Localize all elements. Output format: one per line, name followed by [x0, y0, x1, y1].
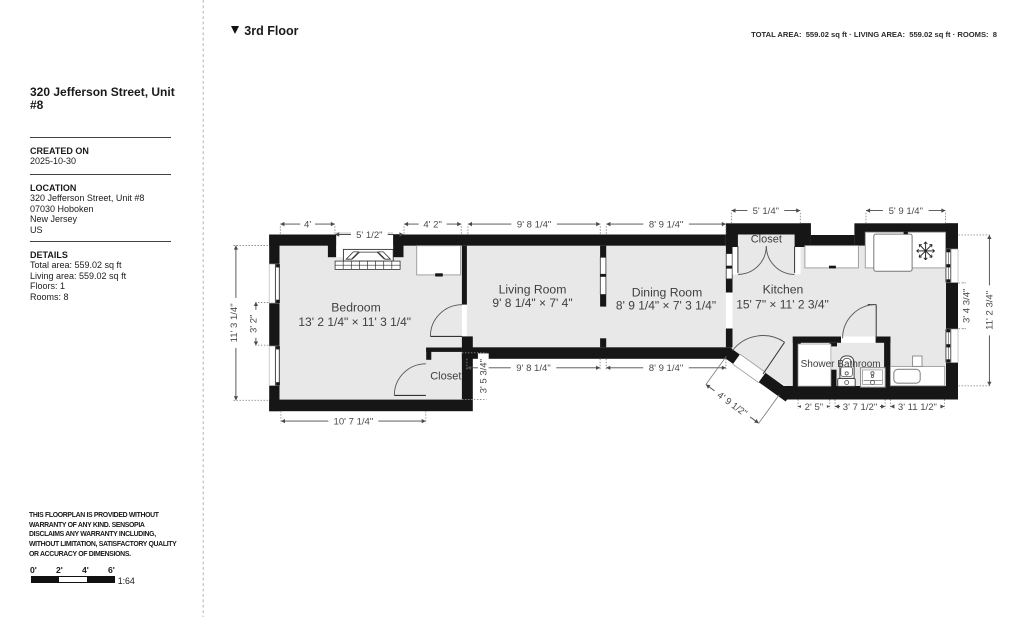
svg-text:4' 2": 4' 2": [423, 219, 441, 230]
svg-text:4': 4': [304, 219, 311, 230]
svg-text:10' 7 1/4": 10' 7 1/4": [334, 416, 374, 427]
svg-text:9' 8 1/4" × 7' 4": 9' 8 1/4" × 7' 4": [492, 296, 572, 310]
svg-text:Kitchen: Kitchen: [763, 282, 804, 296]
svg-text:3' 5 3/4": 3' 5 3/4": [479, 359, 490, 393]
svg-text:Closet: Closet: [751, 234, 782, 246]
svg-text:8' 9 1/4": 8' 9 1/4": [649, 219, 683, 230]
svg-text:11' 2 3/4": 11' 2 3/4": [985, 291, 996, 330]
svg-text:4' 9 1/2": 4' 9 1/2": [715, 390, 749, 419]
svg-text:Shower Bathroom: Shower Bathroom: [801, 359, 881, 370]
svg-text:3' 11 1/2": 3' 11 1/2": [898, 402, 937, 413]
svg-text:15' 7" × 11' 2 3/4": 15' 7" × 11' 2 3/4": [736, 298, 829, 312]
svg-text:3' 7 1/2": 3' 7 1/2": [843, 402, 877, 413]
svg-text:9' 8 1/4": 9' 8 1/4": [517, 219, 551, 230]
svg-text:Closet: Closet: [430, 370, 461, 382]
svg-text:3' 2": 3' 2": [249, 315, 260, 333]
svg-text:5' 9 1/4": 5' 9 1/4": [889, 206, 923, 217]
svg-text:3' 4 3/4": 3' 4 3/4": [961, 289, 972, 323]
svg-text:11' 3 1/4": 11' 3 1/4": [229, 303, 240, 342]
svg-text:2' 5": 2' 5": [805, 402, 823, 413]
svg-text:5' 1/2": 5' 1/2": [356, 230, 382, 241]
svg-text:Living Room: Living Room: [499, 283, 567, 297]
svg-text:5' 1/4": 5' 1/4": [753, 206, 779, 217]
svg-text:9' 8 1/4": 9' 8 1/4": [516, 363, 550, 374]
svg-text:13' 2 1/4" × 11' 3 1/4": 13' 2 1/4" × 11' 3 1/4": [298, 315, 411, 329]
svg-text:8' 9 1/4": 8' 9 1/4": [649, 363, 683, 374]
svg-text:8' 9 1/4" × 7' 3 1/4": 8' 9 1/4" × 7' 3 1/4": [616, 299, 716, 313]
svg-text:Bedroom: Bedroom: [331, 301, 380, 315]
svg-text:Dining Room: Dining Room: [632, 285, 702, 299]
